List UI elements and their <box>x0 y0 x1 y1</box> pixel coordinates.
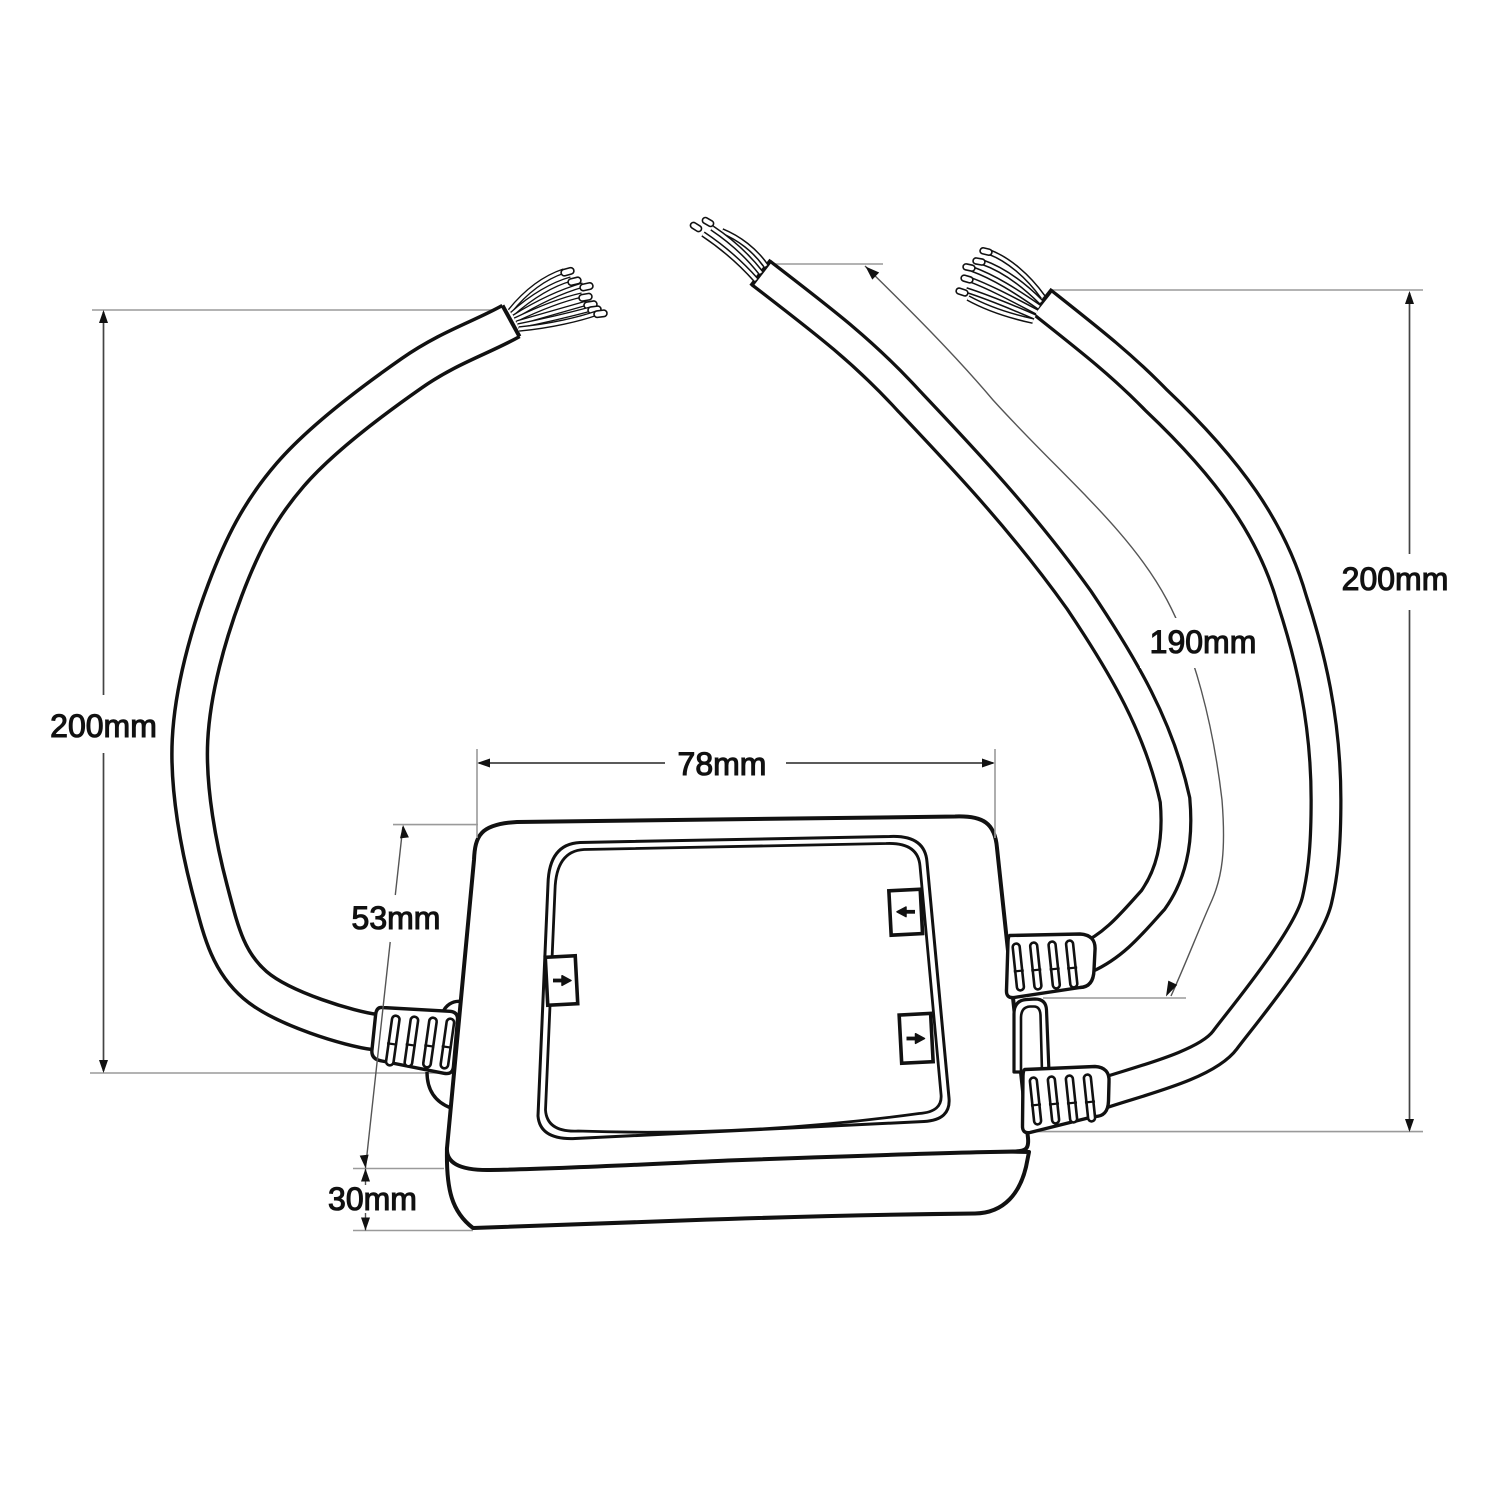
svg-text:190mm: 190mm <box>1150 624 1257 660</box>
svg-text:30mm: 30mm <box>328 1181 417 1217</box>
svg-text:78mm: 78mm <box>678 746 767 782</box>
svg-text:200mm: 200mm <box>1342 561 1449 597</box>
svg-text:53mm: 53mm <box>352 900 441 936</box>
svg-text:200mm: 200mm <box>50 708 157 744</box>
